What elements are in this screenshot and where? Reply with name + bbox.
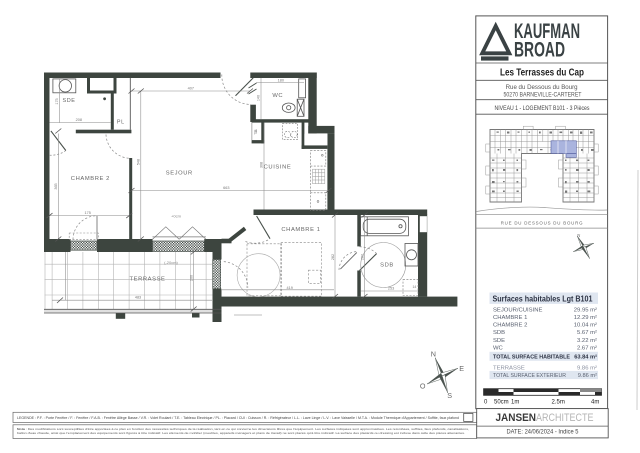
svg-text:N: N [431, 350, 436, 359]
svg-text:50cm: 50cm [494, 400, 509, 406]
svg-text:50270 BARNEVILLE-CARTERET: 50270 BARNEVILLE-CARTERET [504, 92, 582, 98]
svg-text:Les Terrasses du Cap: Les Terrasses du Cap [500, 67, 584, 78]
svg-text:4m: 4m [591, 400, 599, 406]
svg-text:419: 419 [287, 286, 293, 290]
svg-text:CHAMBRE 1: CHAMBRE 1 [493, 315, 527, 321]
svg-text:483: 483 [135, 296, 141, 300]
svg-text:Surfaces habitables Lgt B101: Surfaces habitables Lgt B101 [493, 295, 593, 304]
svg-text:2.67 m²: 2.67 m² [577, 345, 597, 351]
svg-text:CHAMBRE 2: CHAMBRE 2 [493, 323, 527, 329]
svg-text:14: 14 [413, 285, 417, 289]
svg-text:PL: PL [117, 120, 125, 126]
svg-text:CHAMBRE 2: CHAMBRE 2 [71, 176, 110, 182]
svg-text:12.29 m²: 12.29 m² [574, 315, 597, 321]
svg-text:663: 663 [223, 186, 229, 190]
svg-text:BROAD: BROAD [514, 39, 565, 62]
svg-text:+0cm: +0cm [171, 214, 182, 219]
svg-text:282: 282 [331, 254, 335, 260]
svg-text:SDB: SDB [380, 263, 394, 269]
svg-text:WC: WC [493, 345, 504, 351]
svg-text:RUE DU DESSOUS DU BOURG: RUE DU DESSOUS DU BOURG [501, 221, 584, 226]
svg-text:WC: WC [272, 93, 283, 99]
svg-text:74: 74 [254, 129, 258, 133]
svg-text:TERRASSE: TERRASSE [493, 365, 525, 371]
svg-text:10.04 m²: 10.04 m² [574, 323, 597, 329]
svg-text:TOTAL SURFACE HABITABLE: TOTAL SURFACE HABITABLE [493, 354, 570, 360]
svg-text:TERRASSE: TERRASSE [129, 277, 165, 283]
svg-text:DATE: 24/06/2024 - Indice 5: DATE: 24/06/2024 - Indice 5 [507, 429, 580, 436]
svg-text:Rue du Dessous du Bourg: Rue du Dessous du Bourg [506, 84, 578, 91]
svg-text:O: O [420, 381, 426, 390]
svg-text:SDE: SDE [62, 98, 75, 104]
svg-text:282: 282 [360, 254, 364, 260]
svg-text:NIVEAU 1 - LOGEMENT B101 - 3 P: NIVEAU 1 - LOGEMENT B101 - 3 Pièces [495, 105, 590, 112]
svg-text:ARCHITECTE: ARCHITECTE [536, 412, 594, 424]
svg-text:29.95 m²: 29.95 m² [574, 307, 597, 313]
svg-text:2.5m: 2.5m [552, 400, 565, 406]
svg-text:SEJOUR/CUISINE: SEJOUR/CUISINE [493, 307, 542, 313]
svg-text:S: S [447, 391, 452, 400]
svg-text:175: 175 [85, 211, 91, 215]
svg-text:253: 253 [388, 286, 394, 290]
svg-text:LEGENDE : P.F. : Porte Fenêtre: LEGENDE : P.F. : Porte Fenêtre / F. : Fe… [17, 416, 459, 420]
svg-text:CHAMBRE 1: CHAMBRE 1 [281, 227, 320, 233]
svg-text:5.67 m²: 5.67 m² [577, 330, 597, 336]
svg-text:9.86 m²: 9.86 m² [577, 365, 597, 371]
svg-text:3.22 m²: 3.22 m² [577, 338, 597, 344]
svg-text:63.84 m²: 63.84 m² [574, 353, 597, 360]
svg-text:(-20cm): (-20cm) [164, 260, 178, 265]
svg-text:208: 208 [76, 118, 82, 122]
svg-text:SEJOUR: SEJOUR [166, 171, 193, 177]
svg-text:180: 180 [278, 78, 284, 82]
svg-text:SDB: SDB [493, 330, 505, 336]
svg-text:548: 548 [136, 159, 140, 165]
svg-text:E: E [459, 364, 464, 373]
svg-text:SDE: SDE [493, 338, 505, 344]
svg-text:9.86 m²: 9.86 m² [578, 373, 597, 379]
svg-text:175: 175 [55, 98, 59, 104]
svg-text:200: 200 [190, 275, 194, 281]
svg-text:CUISINE: CUISINE [264, 165, 292, 171]
svg-text:TOTAL SURFACE EXTERIEUR: TOTAL SURFACE EXTERIEUR [493, 373, 566, 379]
svg-text:407: 407 [188, 87, 194, 91]
svg-text:JANSEN: JANSEN [496, 412, 537, 424]
svg-text:365: 365 [54, 183, 58, 189]
svg-text:1m: 1m [511, 400, 519, 406]
svg-text:ballon d'eau chaude, ainsi que: ballon d'eau chaude, ainsi que l'emplace… [17, 431, 465, 435]
svg-text:140: 140 [257, 95, 261, 101]
